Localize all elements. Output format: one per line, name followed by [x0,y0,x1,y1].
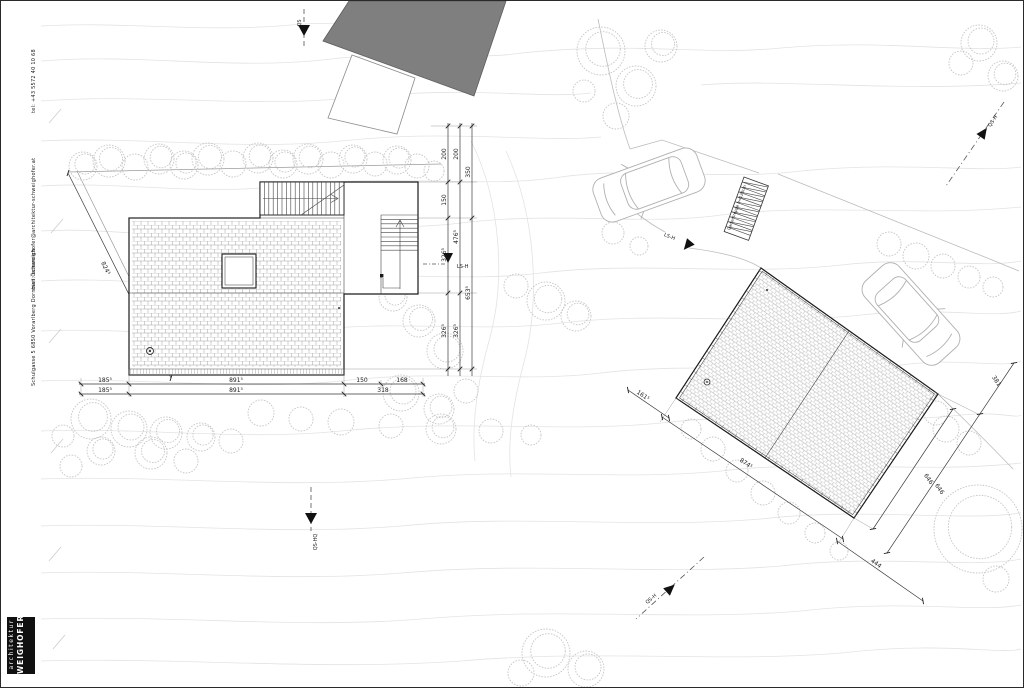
svg-text:381: 381 [990,374,1002,388]
svg-text:LS-H: LS-H [457,264,469,270]
roof-point-mark [338,307,340,309]
svg-text:824⁵: 824⁵ [99,261,112,277]
svg-text:350: 350 [465,166,472,178]
svg-text:150: 150 [441,194,448,206]
main-roof-tiles [132,221,341,367]
roof-point-mark-2 [766,289,768,291]
svg-text:326⁵: 326⁵ [453,323,460,337]
svg-text:185⁵: 185⁵ [98,387,112,394]
svg-text:168: 168 [396,377,408,384]
slope-hatch-marks [49,109,65,649]
svg-text:653⁵: 653⁵ [465,285,472,299]
svg-text:326⁵: 326⁵ [441,323,448,337]
svg-text:891⁵: 891⁵ [229,387,243,394]
section-arrow-lsh-drive [680,238,695,253]
sidebar-phone: tel: +43 5572 40 10 68 [31,49,37,113]
section-arrow-qsh-bottom [663,581,678,596]
svg-text:161⁵: 161⁵ [635,389,651,403]
svg-text:LS-H: LS-H [663,232,676,242]
logo-line-architektur: architektur [7,619,16,674]
section-line-qsh-top [946,102,1004,186]
svg-text:318: 318 [377,387,389,394]
neighbor-building-roof [323,1,506,134]
roof-drain-center-2 [706,381,708,383]
svg-text:646: 646 [922,472,934,486]
svg-text:QS: QS [297,19,303,26]
svg-text:200: 200 [441,148,448,160]
svg-text:200: 200 [453,148,460,160]
svg-text:QS-H: QS-H [645,593,659,606]
section-arrow-qs-bottom [305,513,317,524]
svg-text:QS-HQ: QS-HQ [313,534,319,551]
main-roof-eave [129,369,344,375]
site-plan-page: 185⁵891⁵150168185⁵891⁵318824⁵200150326⁵3… [0,0,1024,688]
site-plan-canvas: 185⁵891⁵150168185⁵891⁵318824⁵200150326⁵3… [1,1,1024,688]
svg-text:185⁵: 185⁵ [98,377,112,384]
svg-text:326⁵: 326⁵ [441,247,448,261]
svg-text:646: 646 [933,482,945,496]
sidebar-address: Schulgasse 5 6850 Vorarlberg Dornbirn Ös… [31,248,37,386]
car-top-view-1 [587,139,710,231]
svg-text:891⁵: 891⁵ [229,377,243,384]
exterior-stair-top [260,182,344,215]
skylight [222,254,256,288]
logo-line-weighofer: WEIGHOFER [16,619,25,674]
architect-logo: architektur WEIGHOFER [7,617,35,674]
main-building-roof [129,182,418,375]
svg-text:150: 150 [356,377,368,384]
roof-drain-center [149,350,151,352]
svg-text:QS-H: QS-H [987,114,999,128]
svg-text:476⁵: 476⁵ [453,229,460,243]
